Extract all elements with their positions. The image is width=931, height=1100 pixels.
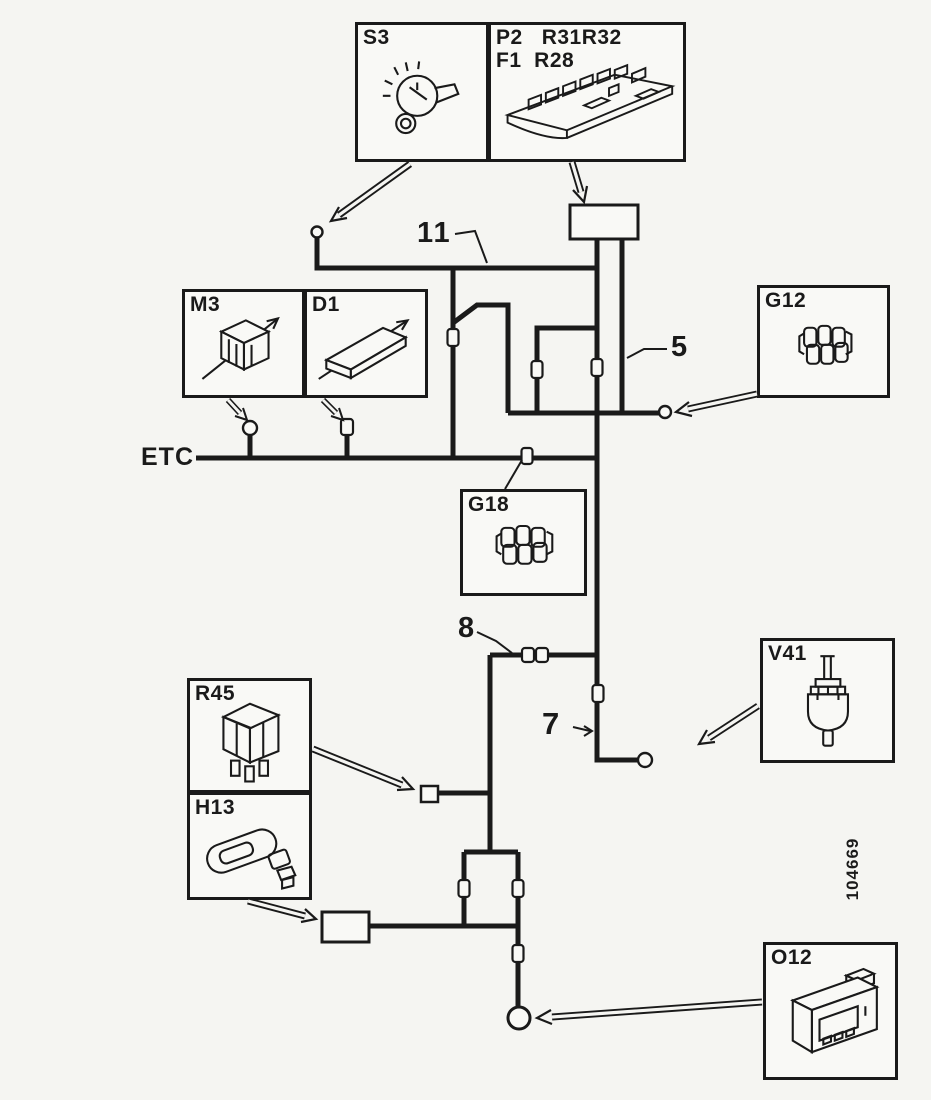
callout-label-f1: F1 R28 [496,49,574,73]
wire-label-5: 5 [671,331,687,364]
callout-label-g12: G12 [765,289,806,313]
leader-g18 [505,460,522,489]
callout-label-p2: P2 R31R32 [496,26,622,50]
callout-box-p2-f1: P2 R31R32 F1 R28 [488,22,686,162]
wiring-harness-diagram: S3 P2 R31R32 F1 R28 [0,0,931,1100]
diagonal-branch [453,305,508,413]
bus-label-etc: ETC [141,443,194,472]
g12-terminal [659,406,671,418]
d1-connector-pill [341,419,353,435]
arrow-h13 [248,901,316,922]
arrow-m3 [228,400,247,420]
callout-label-g18: G18 [468,493,509,517]
g18-connector-pill [522,448,533,464]
wire-label-8: 8 [458,612,474,645]
arrow-d1 [323,400,343,420]
callout-box-g18: G18 [460,489,587,596]
callout-box-g12: G12 [757,285,890,398]
m3-ring-terminal [243,421,257,435]
figure-number: 104669 [843,824,869,914]
callout-box-o12: O12 [763,942,898,1080]
callout-box-r45: R45 [187,678,312,793]
callout-box-d1: D1 [304,289,428,398]
arrow-v41 [699,706,758,744]
callout-label-h13: H13 [195,796,235,820]
harness-split [464,852,518,1007]
h13-node-box [322,912,369,942]
callout-label-o12: O12 [771,946,812,970]
loop-branch [537,328,597,413]
v41-terminal [638,753,652,767]
callout-label-r45: R45 [195,682,235,706]
leader-7-arrowhead [584,726,592,736]
arrow-g12 [676,394,757,416]
arrow-p2 [572,162,587,202]
leader-7 [573,727,590,731]
leader-5 [627,349,667,358]
arrow-s3 [331,164,410,221]
callout-label-d1: D1 [312,293,340,317]
o12-eyelet-terminal [508,1007,530,1029]
r45-square-connector [421,786,438,802]
label-leaders [455,231,667,736]
callout-label-m3: M3 [190,293,220,317]
leader-11 [455,231,487,263]
wire-label-11: 11 [417,217,452,250]
leader-8 [477,632,512,653]
callout-box-s3: S3 [355,22,489,162]
wire-11-run [317,238,597,268]
callout-label-s3: S3 [363,26,390,50]
s3-ring-terminal [312,227,323,238]
harness-node-box [570,205,638,239]
callout-box-m3: M3 [182,289,305,398]
arrow-r45 [313,749,413,790]
inline-connectors [341,329,604,962]
callout-label-v41: V41 [768,642,807,666]
callout-box-h13: H13 [187,792,312,900]
callout-box-v41: V41 [760,638,895,763]
wire-label-7: 7 [542,706,559,742]
module-left-leg-and-wire-7 [597,238,638,760]
arrow-o12 [537,1002,762,1024]
